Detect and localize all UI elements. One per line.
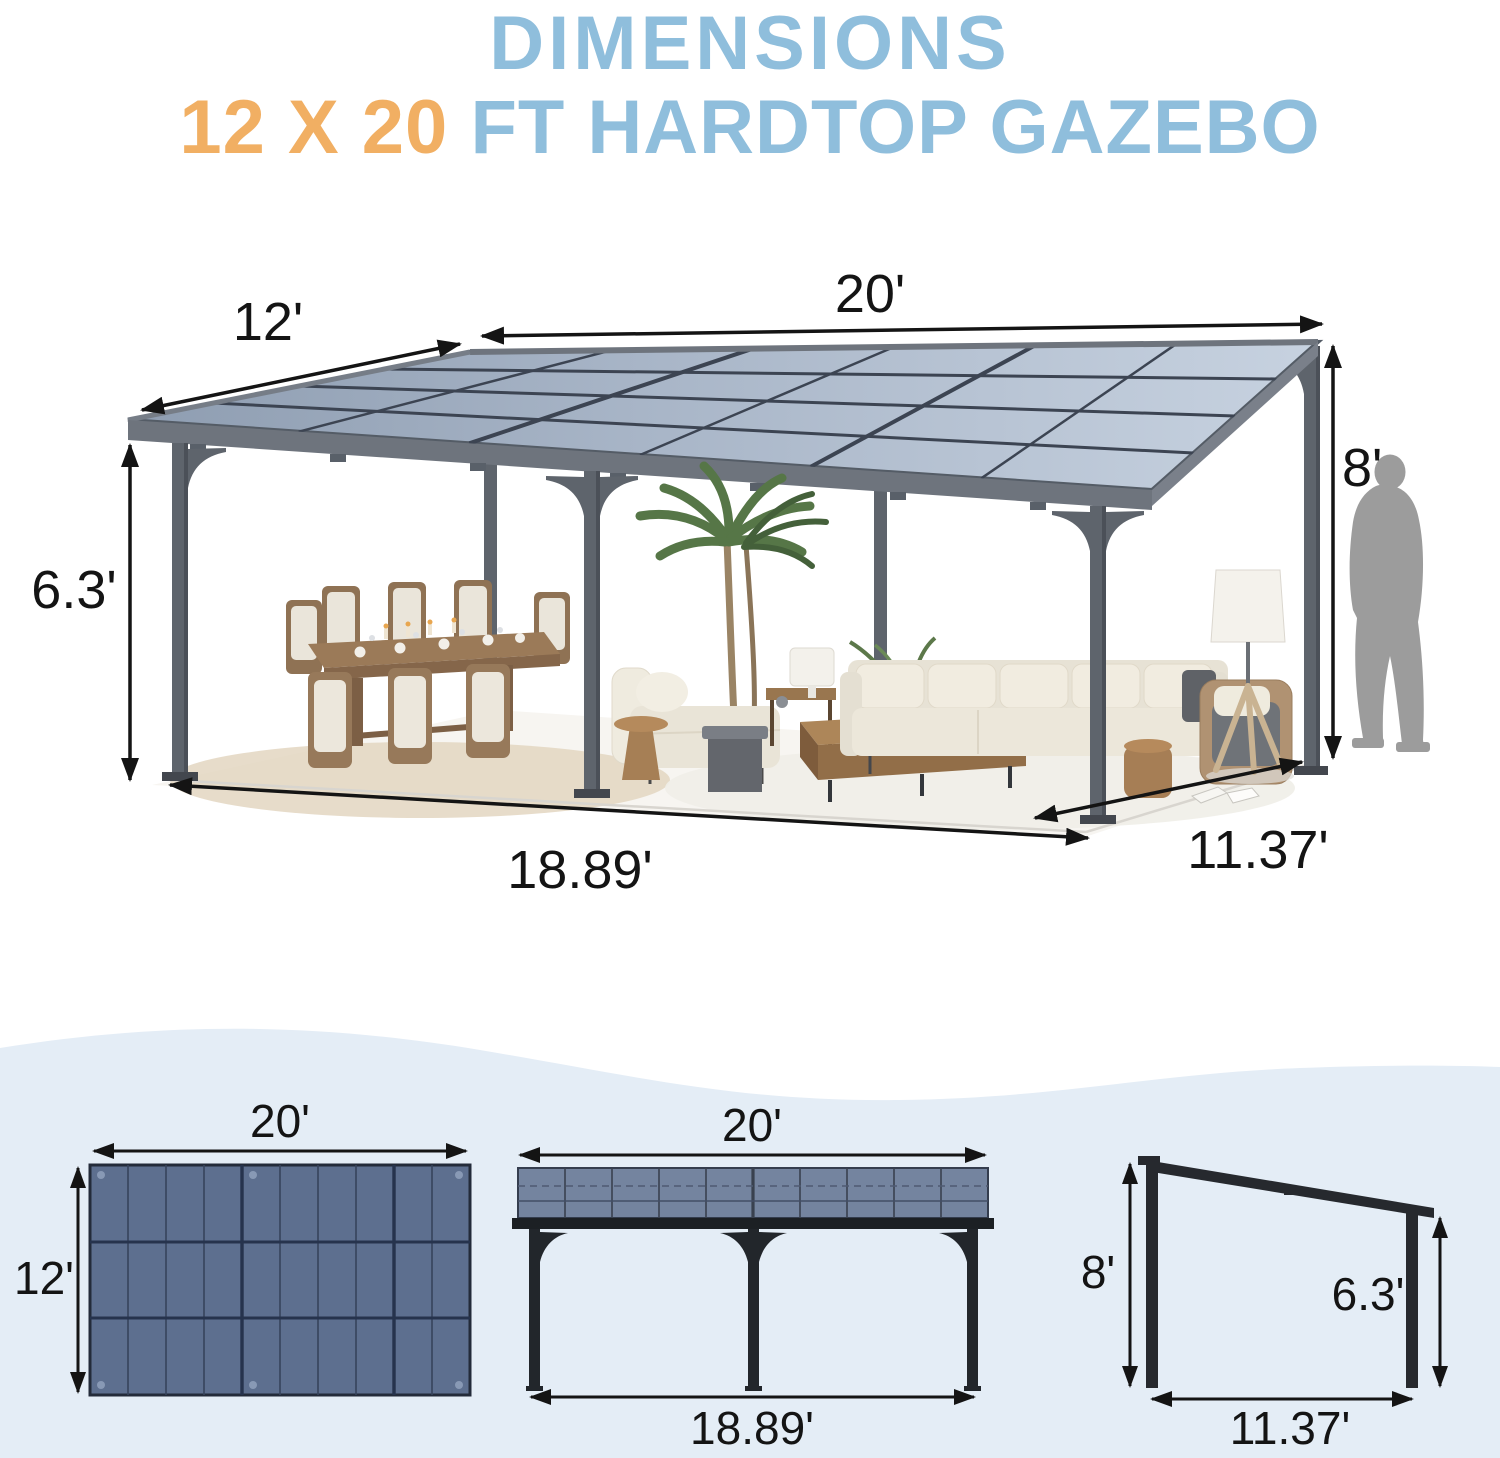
grey-stool [702,726,768,792]
corner-bracket [1106,511,1144,551]
roof-length-label: 20' [835,264,905,324]
side-view-eave-height-label: 6.3' [1332,1268,1405,1320]
roof-depth-label: 12' [233,292,303,352]
corner-bracket [188,448,226,488]
subtitle-size-highlight: 12 X 20 [179,85,448,170]
page-title: DIMENSIONS [0,0,1500,82]
front-view-fascia [512,1218,994,1229]
page-subtitle: 12 X 20 FT HARDTOP GAZEBO [0,90,1500,166]
corner-bracket [600,476,638,516]
header: DIMENSIONS 12 X 20 FT HARDTOP GAZEBO [0,0,1500,166]
top-view-length-label: 20' [250,1095,310,1147]
corner-bracket [546,476,584,516]
side-view-depth-label: 11.37' [1230,1402,1350,1454]
front-view-post-span-label: 18.89' [690,1402,814,1454]
front-post-left [162,443,226,781]
human-figure [1350,455,1430,753]
product-dimensions-image: DIMENSIONS 12 X 20 FT HARDTOP GAZEBO [0,0,1500,1458]
post-span-depth-label: 11.37' [1187,820,1328,880]
dining-chairs-front-row [308,664,510,768]
dim-roof-length: 20' [482,264,1322,336]
gazebo-3d-view: 20' 12' 6.3' 8' 18.89' 11.37' [0,240,1500,1020]
subtitle-rest: FT HARDTOP GAZEBO [448,85,1320,170]
front-view-length-label: 20' [722,1099,782,1151]
peak-height-label: 8' [1342,438,1382,498]
side-view-peak-height-label: 8' [1081,1246,1115,1298]
eave-height-label: 6.3' [31,560,116,620]
orthographic-views-band: 20' 12' [0,1020,1500,1458]
top-view-depth-label: 12' [14,1252,74,1304]
dim-eave-height: 6.3' [31,445,130,780]
corner-bracket [1052,511,1090,551]
post-span-length-label: 18.89' [507,840,652,900]
